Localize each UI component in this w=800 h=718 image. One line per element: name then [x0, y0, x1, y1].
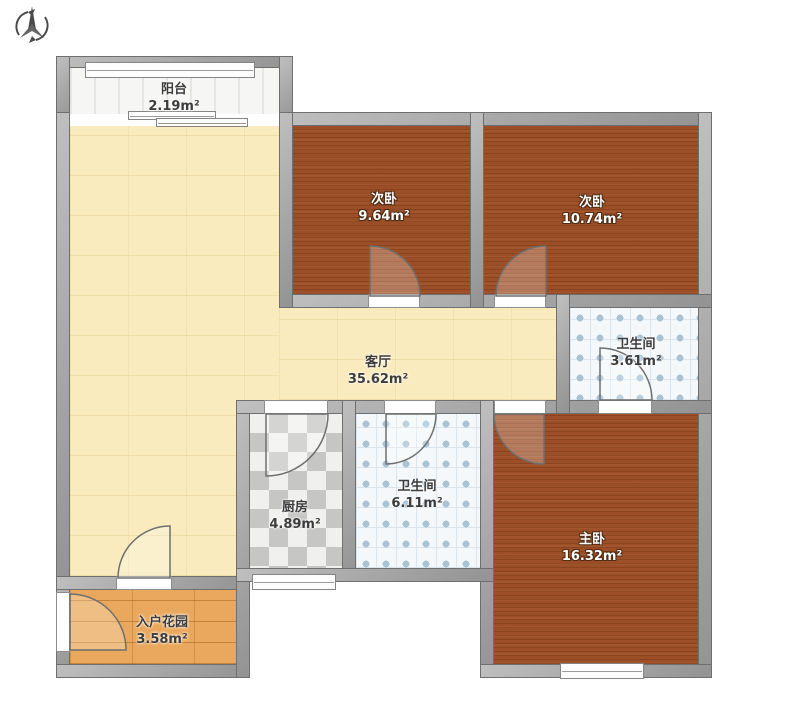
- door-gap-master: [494, 400, 546, 414]
- wall-east: [698, 112, 712, 678]
- wall-kitchen-west-garden-east: [236, 400, 250, 678]
- wall-bathroom-small-west: [556, 294, 570, 414]
- kitchen-floor: [250, 414, 342, 568]
- entrance-garden-floor: [70, 590, 236, 664]
- bedroom-second-right-floor: [484, 126, 698, 294]
- door-gap-bathroom-small: [598, 400, 652, 414]
- kitchen-window: [252, 574, 336, 590]
- bathroom-large-floor: [356, 414, 480, 568]
- door-gap-bedroom-left: [368, 294, 420, 308]
- door-gap-living-garden: [116, 576, 172, 590]
- door-gap-bathroom-large: [384, 400, 436, 414]
- door-gap-bedroom-right: [494, 294, 546, 308]
- balcony-slider-panel-2: [156, 118, 248, 127]
- door-gap-kitchen: [264, 400, 328, 414]
- wall-west: [56, 112, 70, 590]
- wall-bedroom-left-west: [279, 112, 293, 308]
- balcony-glazing-window: [85, 62, 255, 78]
- floor-plan: 阳台 2.19m² 次卧 9.64m² 次卧 10.74m² 客厅 35.62m…: [0, 0, 800, 718]
- wall-garden-south: [56, 664, 248, 678]
- wall-kitchen-east: [342, 400, 356, 582]
- bathroom-small-floor: [570, 308, 698, 400]
- wall-north: [279, 112, 712, 126]
- master-bedroom-floor: [494, 414, 698, 664]
- living-room-floor-band: [279, 308, 556, 400]
- door-gap-entry: [56, 592, 70, 652]
- master-bedroom-window: [560, 663, 644, 679]
- bedroom-second-left-floor: [293, 126, 470, 294]
- wall-bedrooms-divider: [470, 112, 484, 308]
- north-compass-icon: [6, 0, 58, 52]
- wall-master-west: [480, 400, 494, 678]
